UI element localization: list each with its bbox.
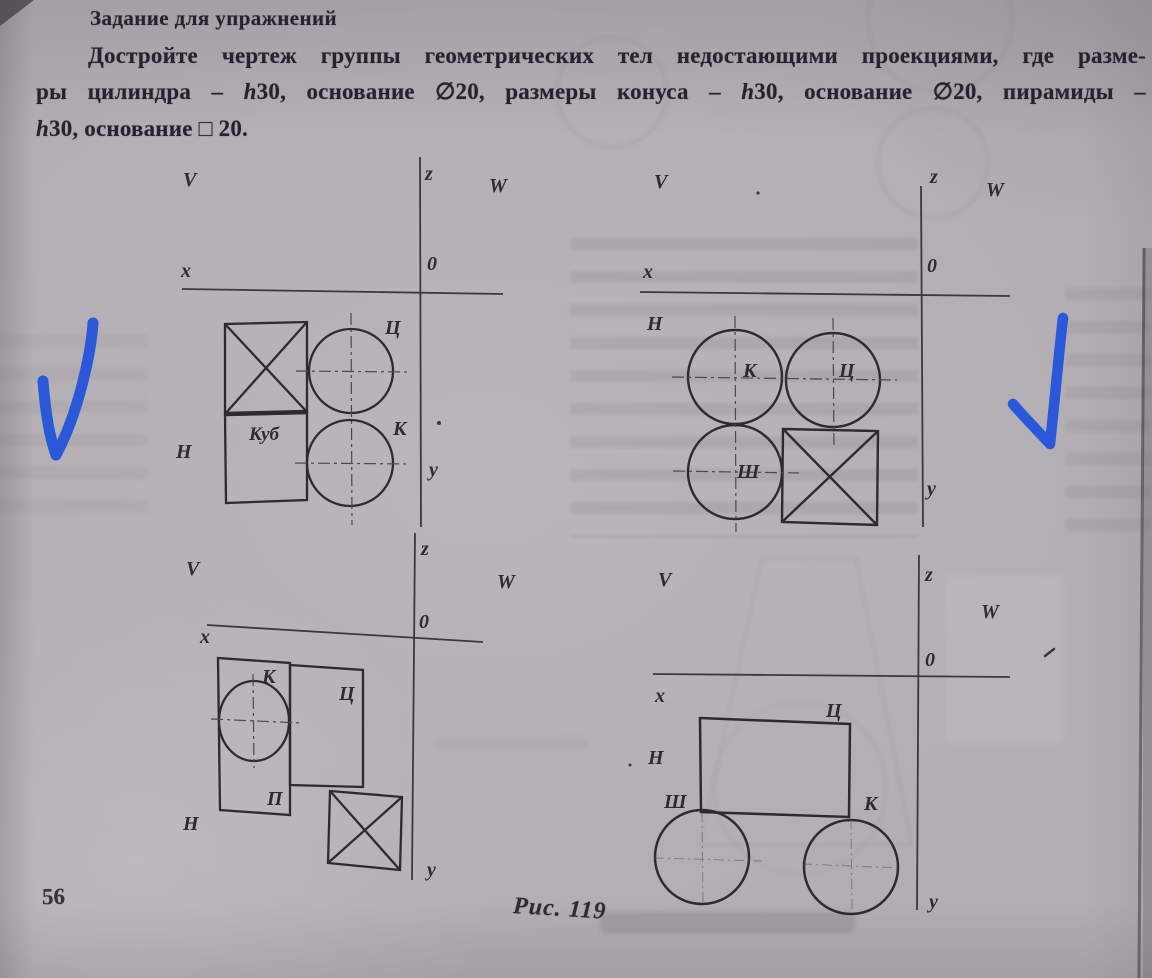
label-cone: К: [863, 793, 879, 815]
axis-label-v: V: [654, 171, 669, 193]
pyramid-square-diagonal: [782, 431, 878, 522]
x-axis-line: [640, 292, 1010, 296]
axis-label-v: V: [183, 169, 198, 191]
label-pyramid: П: [266, 788, 284, 810]
page-bleedthrough-shapes: [557, 0, 1012, 874]
label-cylinder: Ц: [838, 360, 856, 382]
axis-label-x: x: [654, 685, 665, 707]
axis-label-w: W: [981, 601, 1000, 623]
label-cone: К: [392, 418, 408, 440]
axis-label-h: H: [182, 813, 200, 835]
blue-checkmark-icon-right: [1013, 318, 1063, 444]
axis-label-o: 0: [419, 611, 429, 633]
label-cone: К: [742, 360, 758, 382]
axis-label-x: x: [642, 261, 653, 283]
label-sphere: Ш: [663, 791, 688, 813]
axis-label-z: z: [924, 564, 933, 586]
center-line: [253, 674, 254, 768]
center-line: [654, 858, 762, 861]
label-cylinder: Ц: [384, 317, 402, 339]
page-number: 56: [42, 884, 65, 910]
axis-label-h: H: [647, 747, 665, 769]
axis-label-h: H: [175, 441, 193, 463]
x-axis-line: [653, 674, 1010, 677]
axis-label-z: z: [424, 163, 433, 185]
label-sphere: Ш: [736, 461, 761, 483]
projection-diagram-bottom-right: V z W 0 x H у Ц Ш: [647, 555, 1010, 914]
axis-label-y: у: [927, 891, 938, 913]
z-axis-line: [412, 533, 415, 880]
label-cone: К: [261, 666, 277, 688]
center-line: [211, 719, 301, 723]
axis-label-w: W: [986, 179, 1005, 201]
cylinder-front-rect: [700, 718, 850, 817]
z-axis-line: [420, 157, 421, 527]
axis-label-w: W: [489, 175, 508, 197]
axis-label-w: W: [497, 571, 516, 593]
projection-diagram-top-right: V z W x 0 H у: [640, 166, 1010, 532]
label-cylinder: Ц: [825, 700, 843, 722]
center-line: [672, 377, 897, 380]
axis-label-o: 0: [927, 255, 937, 277]
axis-label-y: у: [425, 859, 436, 881]
x-axis-line: [207, 625, 483, 642]
z-axis-line: [921, 186, 923, 527]
textbook-page-photo: Задание для упражнений Достройте чертеж …: [0, 0, 1152, 978]
axis-label-z: z: [929, 166, 938, 188]
center-line: [702, 812, 703, 906]
axis-label-v: V: [186, 558, 201, 580]
x-axis-line: [182, 289, 503, 294]
blue-checkmark-icon-left: [43, 323, 93, 455]
axis-label-o: 0: [427, 253, 437, 275]
figure-119-drawing: V z W x 0 H у: [0, 0, 1152, 978]
z-axis-line: [917, 555, 919, 910]
center-line: [851, 819, 852, 911]
axis-label-z: z: [420, 538, 429, 560]
axis-label-x: x: [180, 260, 191, 282]
projection-diagram-top-left: V z W x 0 H у: [175, 157, 508, 527]
figure-caption: Рис. 119: [512, 893, 607, 926]
axis-label-x: x: [199, 626, 210, 648]
axis-label-y: у: [925, 478, 936, 500]
axis-label-y: у: [427, 459, 438, 481]
axis-label-v: V: [658, 569, 673, 591]
label-cylinder: Ц: [338, 683, 356, 705]
axis-label-o: 0: [925, 649, 935, 671]
label-cube: Куб: [248, 424, 281, 445]
projection-diagram-bottom-left: V z W x 0 H у К: [182, 533, 516, 881]
axis-label-h: H: [646, 313, 664, 335]
pyramid-square-diagonal: [328, 797, 402, 863]
